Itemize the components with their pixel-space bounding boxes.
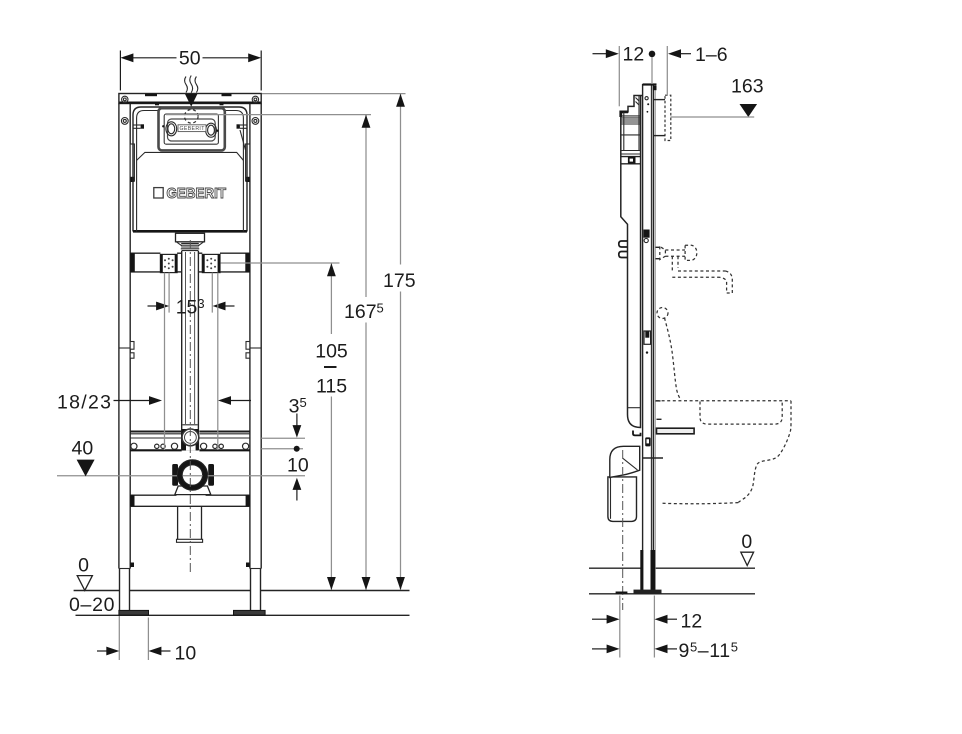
svg-text:18/23: 18/23 xyxy=(57,392,112,414)
svg-text:163: 163 xyxy=(731,76,764,98)
svg-text:GEBERIT: GEBERIT xyxy=(167,186,227,202)
svg-text:175: 175 xyxy=(383,270,416,292)
svg-text:GEBERIT: GEBERIT xyxy=(180,126,206,132)
svg-text:1–6: 1–6 xyxy=(695,44,728,66)
svg-text:12: 12 xyxy=(623,44,645,66)
svg-text:95–115: 95–115 xyxy=(679,640,739,663)
svg-text:0: 0 xyxy=(78,555,89,577)
svg-text:10: 10 xyxy=(287,455,309,477)
svg-text:0–20: 0–20 xyxy=(69,594,115,616)
svg-text:50: 50 xyxy=(179,48,201,70)
svg-text:105: 105 xyxy=(315,341,348,363)
svg-text:10: 10 xyxy=(175,643,197,665)
svg-text:0: 0 xyxy=(741,531,752,553)
svg-text:115: 115 xyxy=(316,376,347,398)
svg-text:40: 40 xyxy=(72,438,94,460)
svg-text:12: 12 xyxy=(681,611,703,633)
